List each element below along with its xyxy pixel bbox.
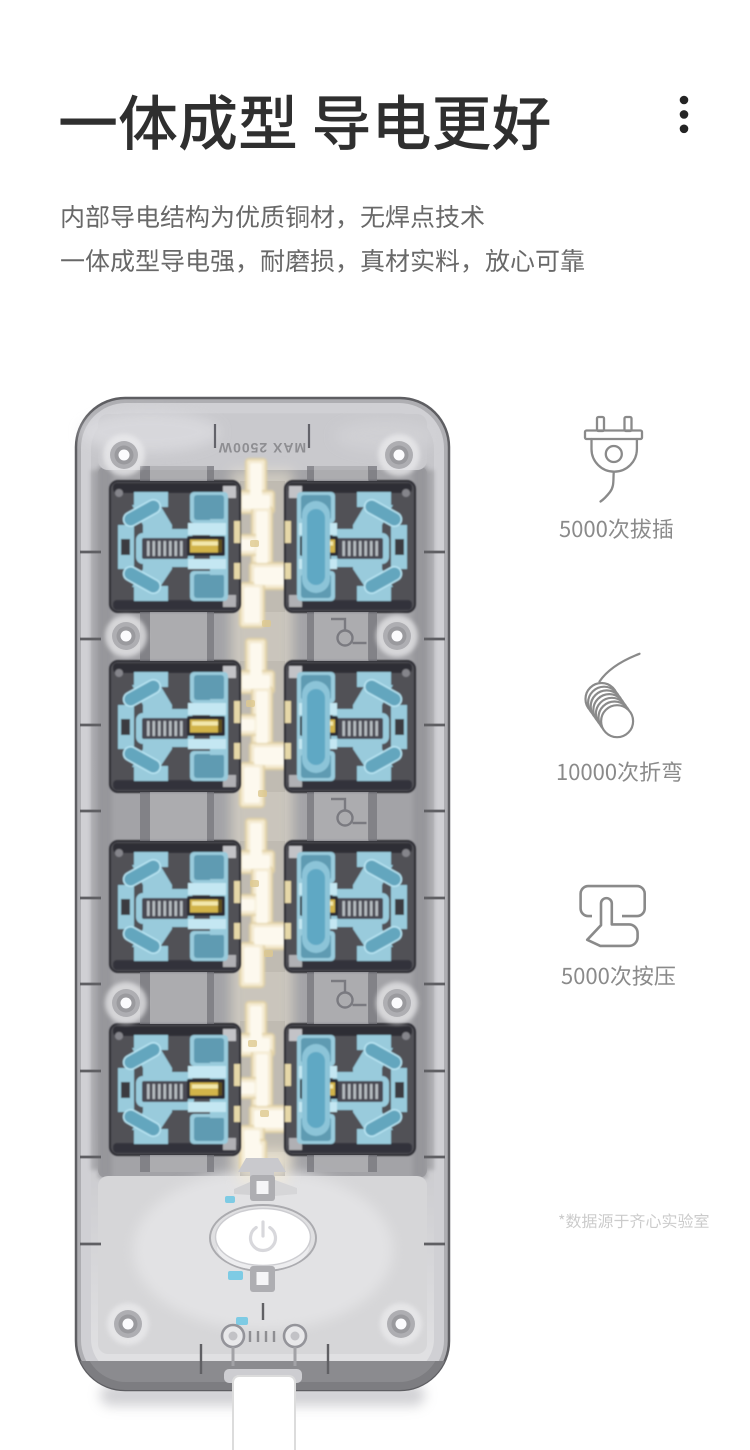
- svg-text:MAX 2500W: MAX 2500W: [218, 440, 306, 456]
